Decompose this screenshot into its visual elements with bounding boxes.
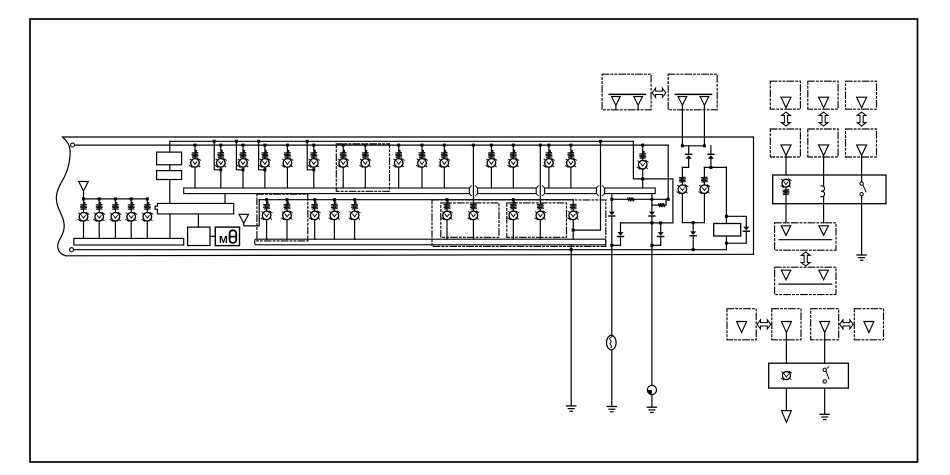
svg-text:M: M (219, 234, 228, 246)
